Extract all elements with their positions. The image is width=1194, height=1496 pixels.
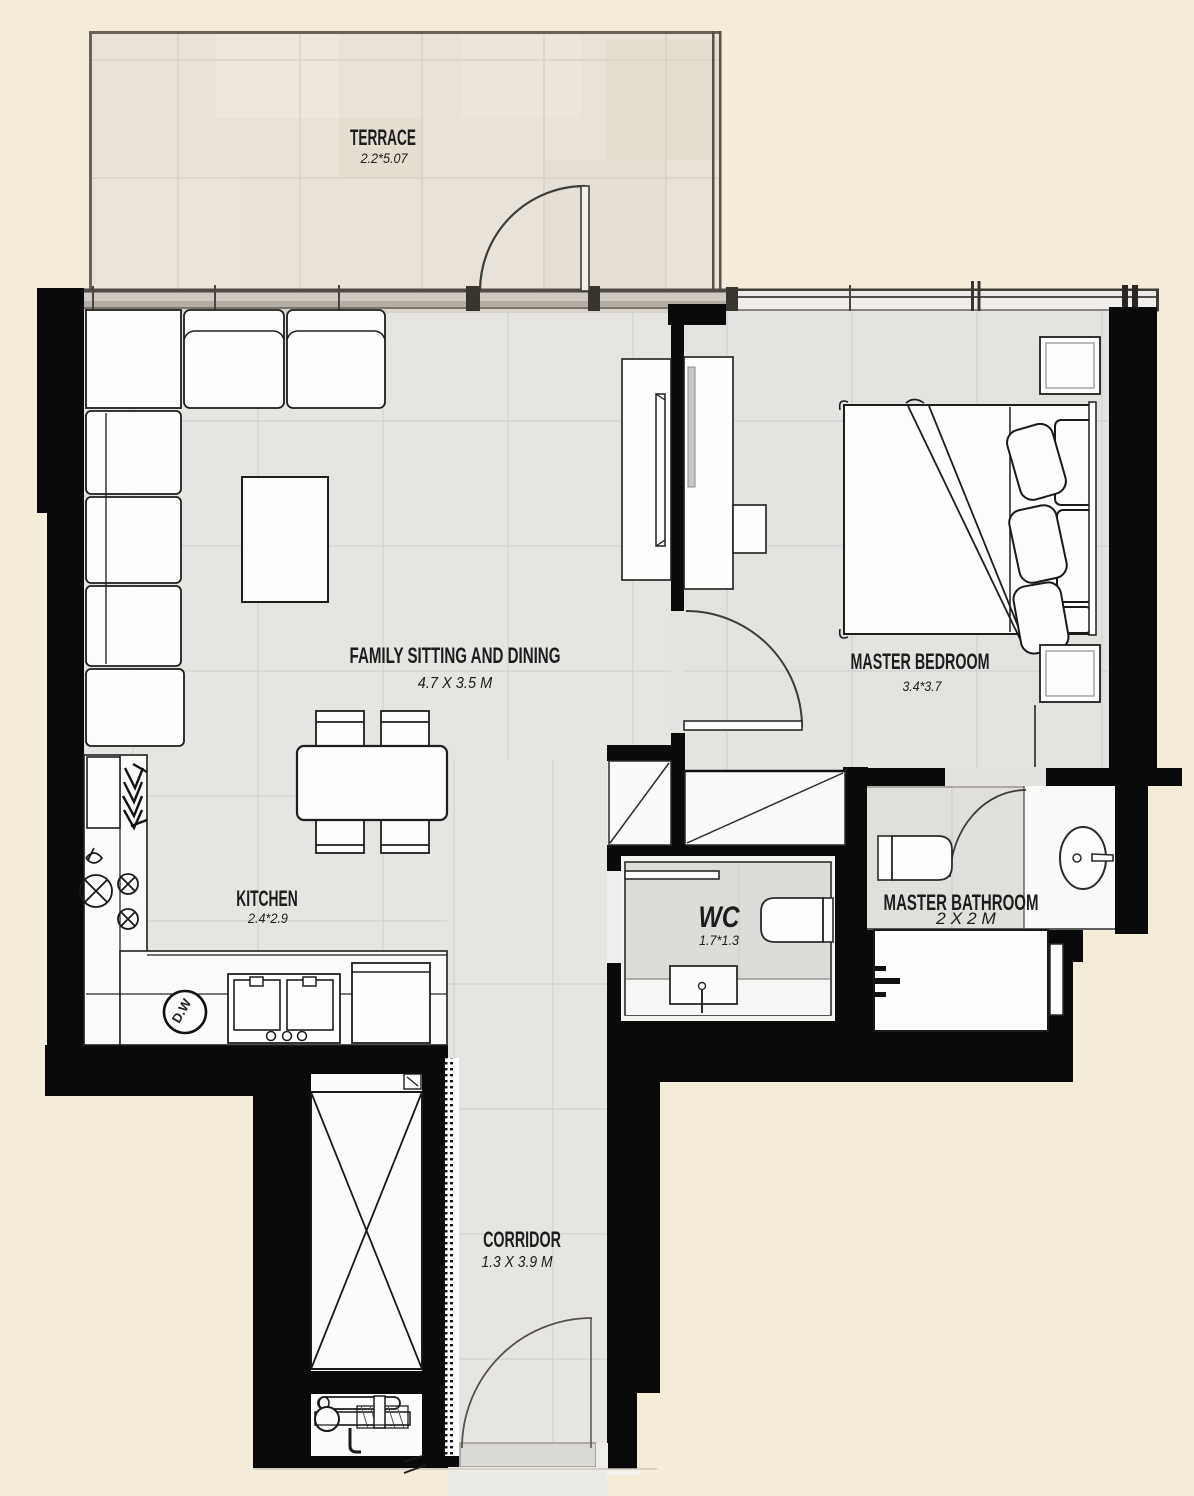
svg-text:2 X 2 M: 2 X 2 M <box>935 908 996 928</box>
svg-text:TERRACE: TERRACE <box>350 125 416 150</box>
svg-text:1.7*1.3: 1.7*1.3 <box>699 932 739 948</box>
svg-text:3.4*3.7: 3.4*3.7 <box>902 678 942 694</box>
svg-text:FAMILY SITTING AND DINING: FAMILY SITTING AND DINING <box>350 643 561 667</box>
svg-text:MASTER BEDROOM: MASTER BEDROOM <box>851 649 990 674</box>
svg-text:KITCHEN: KITCHEN <box>236 886 298 911</box>
svg-text:CORRIDOR: CORRIDOR <box>483 1227 561 1252</box>
svg-text:2.4*2.9: 2.4*2.9 <box>247 910 288 926</box>
svg-text:2.2*5.07: 2.2*5.07 <box>360 150 408 166</box>
svg-text:WC: WC <box>699 900 741 934</box>
svg-text:1.3 X 3.9 M: 1.3 X 3.9 M <box>481 1253 553 1271</box>
svg-text:4.7 X 3.5 M: 4.7 X 3.5 M <box>418 674 493 692</box>
